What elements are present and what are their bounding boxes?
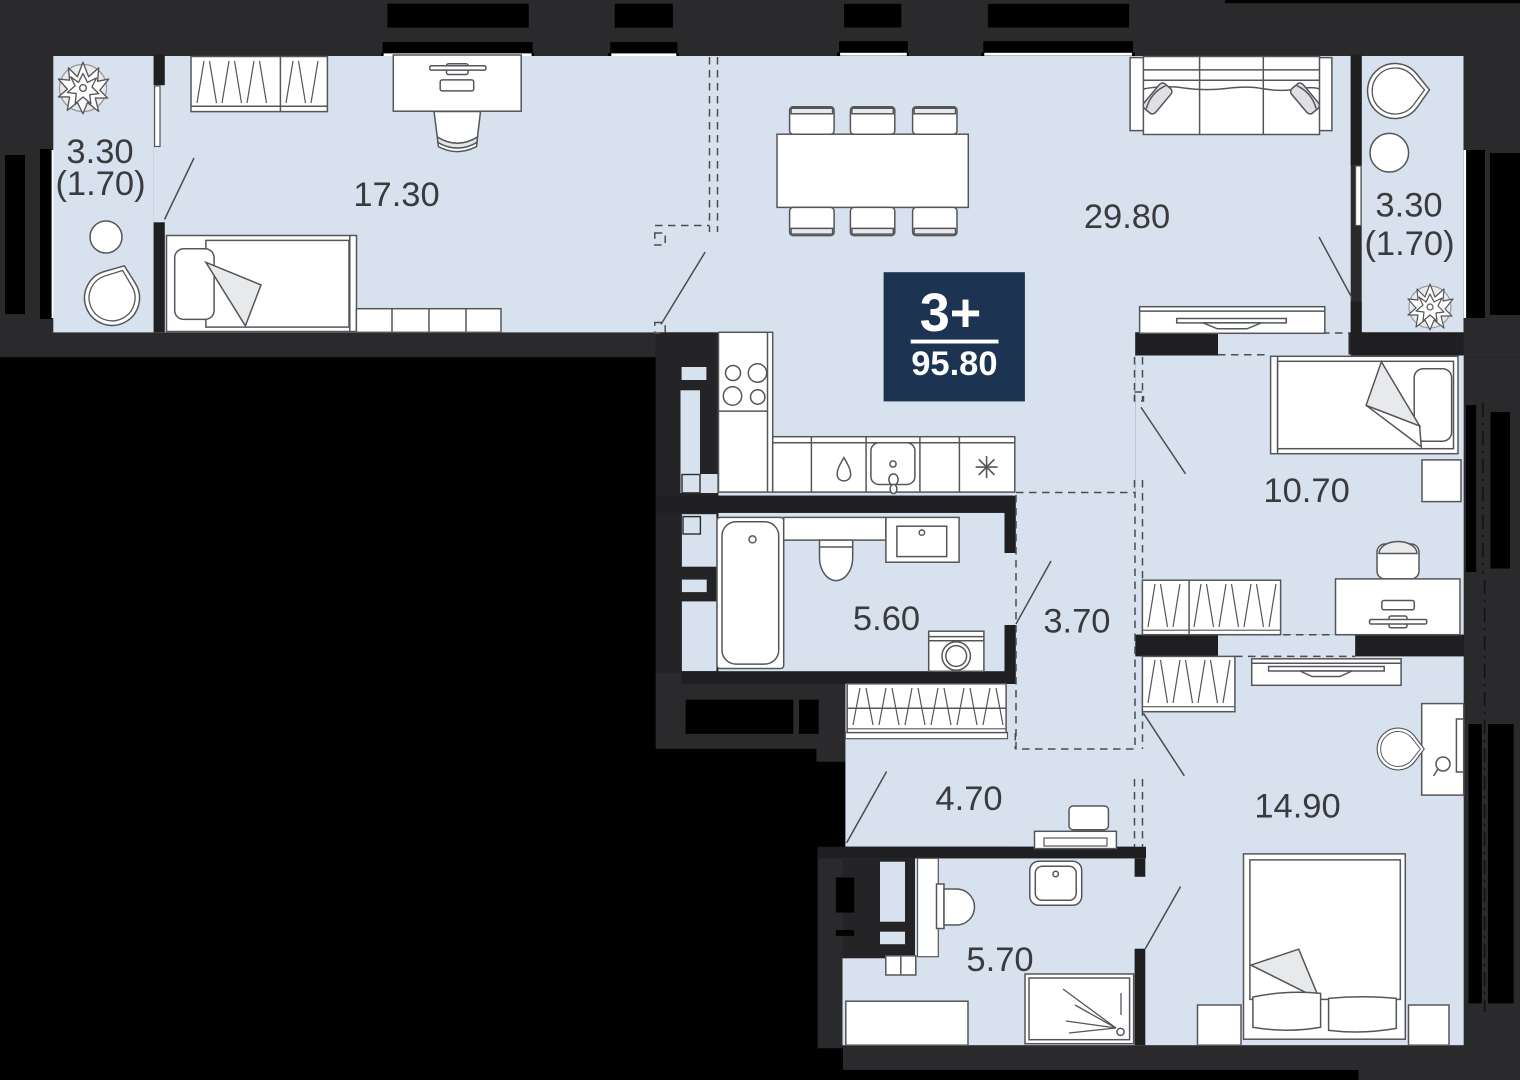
- svg-text:29.80: 29.80: [1084, 198, 1170, 236]
- svg-text:10.70: 10.70: [1263, 472, 1349, 510]
- svg-text:3+: 3+: [920, 283, 982, 343]
- svg-text:4.70: 4.70: [935, 780, 1002, 818]
- svg-text:17.30: 17.30: [353, 176, 439, 214]
- svg-text:3.30: 3.30: [1375, 187, 1442, 225]
- svg-text:5.60: 5.60: [853, 600, 920, 638]
- svg-text:(1.70): (1.70): [1364, 225, 1454, 263]
- svg-text:(1.70): (1.70): [55, 165, 145, 203]
- svg-text:3.70: 3.70: [1043, 603, 1110, 641]
- svg-text:14.90: 14.90: [1254, 788, 1340, 826]
- svg-text:5.70: 5.70: [966, 941, 1033, 979]
- svg-text:95.80: 95.80: [911, 345, 997, 383]
